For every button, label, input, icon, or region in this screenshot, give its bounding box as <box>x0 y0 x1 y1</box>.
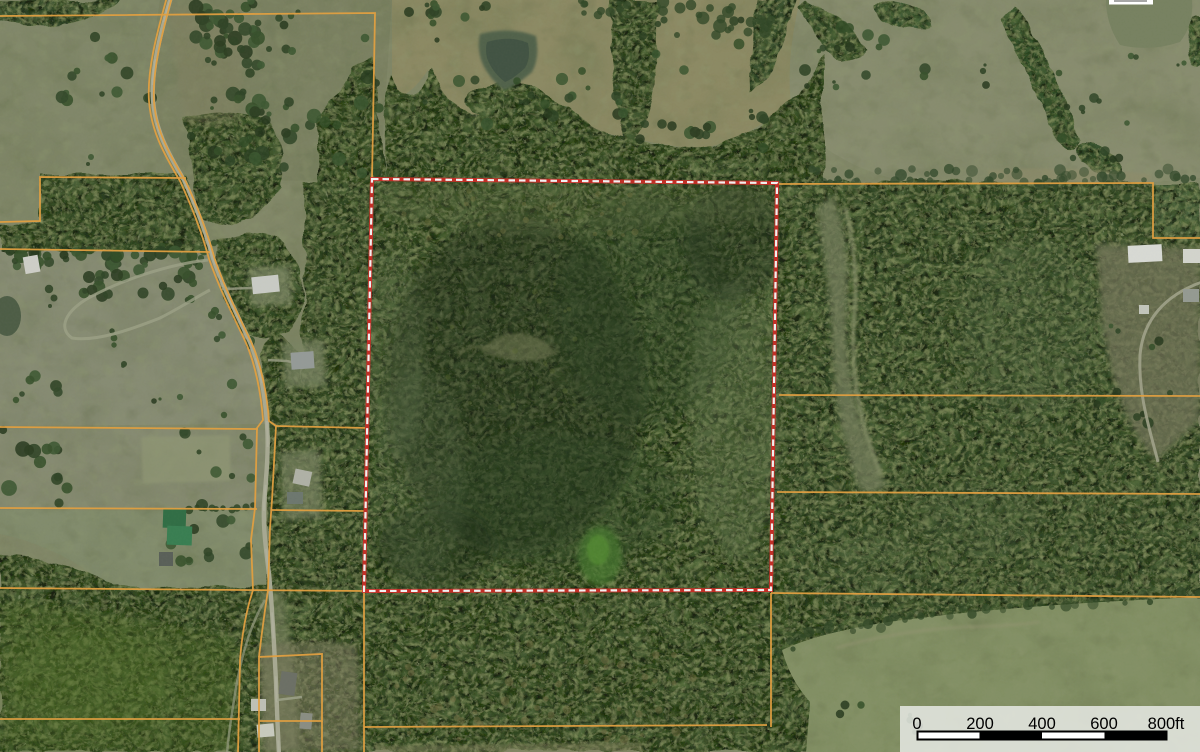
svg-text:400: 400 <box>1028 715 1056 733</box>
svg-text:200: 200 <box>966 715 994 733</box>
svg-text:0: 0 <box>912 715 921 733</box>
svg-text:800ft: 800ft <box>1148 715 1185 733</box>
svg-text:600: 600 <box>1090 715 1118 733</box>
